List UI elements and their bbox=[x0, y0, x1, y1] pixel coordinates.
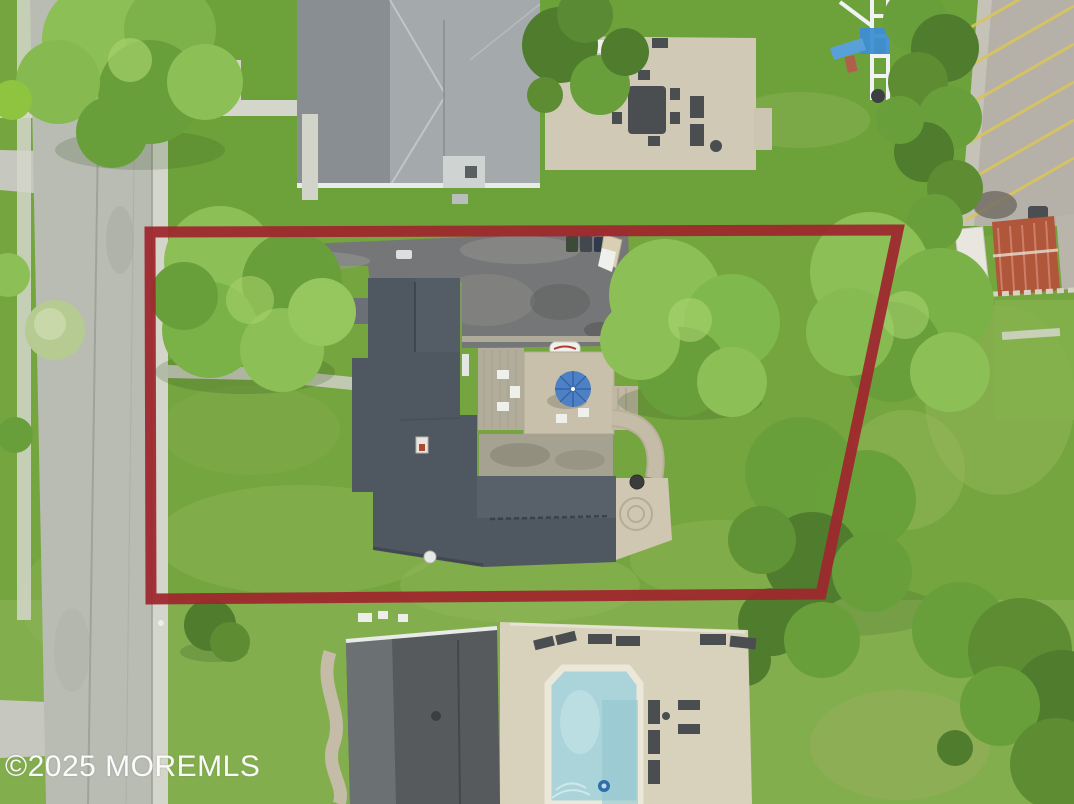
bush bbox=[937, 730, 973, 766]
blossom-tree-highlight bbox=[34, 308, 66, 340]
mls-watermark: ©2025 MOREMLS bbox=[5, 750, 260, 784]
tree-blob bbox=[697, 347, 767, 417]
chimney-flue bbox=[419, 444, 425, 451]
patio-chair bbox=[578, 408, 589, 417]
lounge-chair bbox=[616, 636, 640, 646]
fire-pit-well bbox=[630, 475, 644, 489]
roof-north-slope bbox=[477, 476, 616, 518]
bottom-roof-light-slope bbox=[346, 638, 396, 804]
retaining-wall bbox=[462, 336, 606, 342]
roof-gutter bbox=[297, 183, 540, 188]
porch-roof bbox=[443, 156, 485, 188]
equipment-box bbox=[378, 611, 388, 619]
tire-swing bbox=[871, 89, 885, 103]
outdoor-sofa bbox=[700, 634, 726, 645]
neighbor-lawn bbox=[995, 300, 1074, 420]
chimney bbox=[431, 711, 441, 721]
aerial-property-photo: ©2025 MOREMLS bbox=[0, 0, 1074, 804]
tree-blob bbox=[527, 77, 563, 113]
equipment-box bbox=[398, 614, 408, 622]
tree-blob bbox=[288, 278, 356, 346]
roof-vent bbox=[462, 354, 469, 376]
patio-chair bbox=[670, 112, 680, 124]
patio-chair bbox=[648, 136, 660, 146]
road-patch bbox=[54, 608, 90, 692]
grill bbox=[652, 38, 668, 48]
bottom-neighbor bbox=[327, 611, 757, 804]
chimney bbox=[465, 166, 477, 178]
umbrella-pole bbox=[571, 387, 575, 391]
roof-vent-cap bbox=[424, 551, 436, 563]
patio-stain bbox=[555, 450, 605, 470]
lounge-chair bbox=[648, 700, 660, 724]
lawn-patch bbox=[160, 385, 340, 475]
roof-east-slope bbox=[415, 278, 460, 352]
tree-blob bbox=[910, 332, 990, 412]
deck-chair bbox=[510, 386, 520, 398]
patio-chair bbox=[638, 70, 650, 80]
tree-blob bbox=[876, 96, 924, 144]
tree-highlight bbox=[226, 276, 274, 324]
pool-float-center bbox=[602, 784, 607, 789]
rear-patio-bump bbox=[754, 108, 772, 150]
aerial-scene-canvas bbox=[0, 0, 1074, 804]
trash-bin bbox=[566, 236, 578, 252]
patio-chair bbox=[556, 414, 567, 423]
tree-blob bbox=[832, 532, 912, 612]
side-table bbox=[662, 712, 670, 720]
lounge-chair bbox=[678, 700, 700, 710]
driveway-stain bbox=[530, 284, 590, 320]
tree-highlight bbox=[668, 298, 712, 342]
tree-blob bbox=[76, 96, 148, 168]
tree-blob bbox=[167, 44, 243, 120]
lounge-chair bbox=[588, 634, 612, 644]
lounge-chair bbox=[690, 124, 704, 146]
mailbox bbox=[158, 620, 164, 626]
patio-table bbox=[628, 86, 666, 134]
patio-chair bbox=[612, 112, 622, 124]
lounge-chair bbox=[648, 730, 660, 754]
patio-chair bbox=[670, 88, 680, 100]
road-patch bbox=[106, 206, 134, 274]
lounge-chair bbox=[690, 96, 704, 118]
front-walk bbox=[302, 114, 318, 200]
tree-blob bbox=[600, 300, 680, 380]
lounge-chair bbox=[678, 724, 700, 734]
driveway-worn-patch bbox=[460, 236, 580, 264]
trash-bin bbox=[580, 236, 592, 252]
deck-chair bbox=[497, 370, 509, 379]
equipment-box bbox=[358, 613, 372, 622]
tree-blob bbox=[601, 28, 649, 76]
tree-blob bbox=[728, 506, 796, 574]
fire-pit bbox=[710, 140, 722, 152]
pool-reflection bbox=[560, 690, 600, 754]
parked-car-white bbox=[396, 250, 412, 259]
tree-blob bbox=[210, 622, 250, 662]
patio-stain bbox=[490, 443, 550, 467]
lounge-chair bbox=[648, 760, 660, 784]
ac-unit bbox=[452, 194, 468, 204]
tree-blob bbox=[150, 262, 218, 330]
tree-highlight bbox=[108, 38, 152, 82]
tree-blob bbox=[784, 602, 860, 678]
deck-chair bbox=[497, 402, 509, 411]
